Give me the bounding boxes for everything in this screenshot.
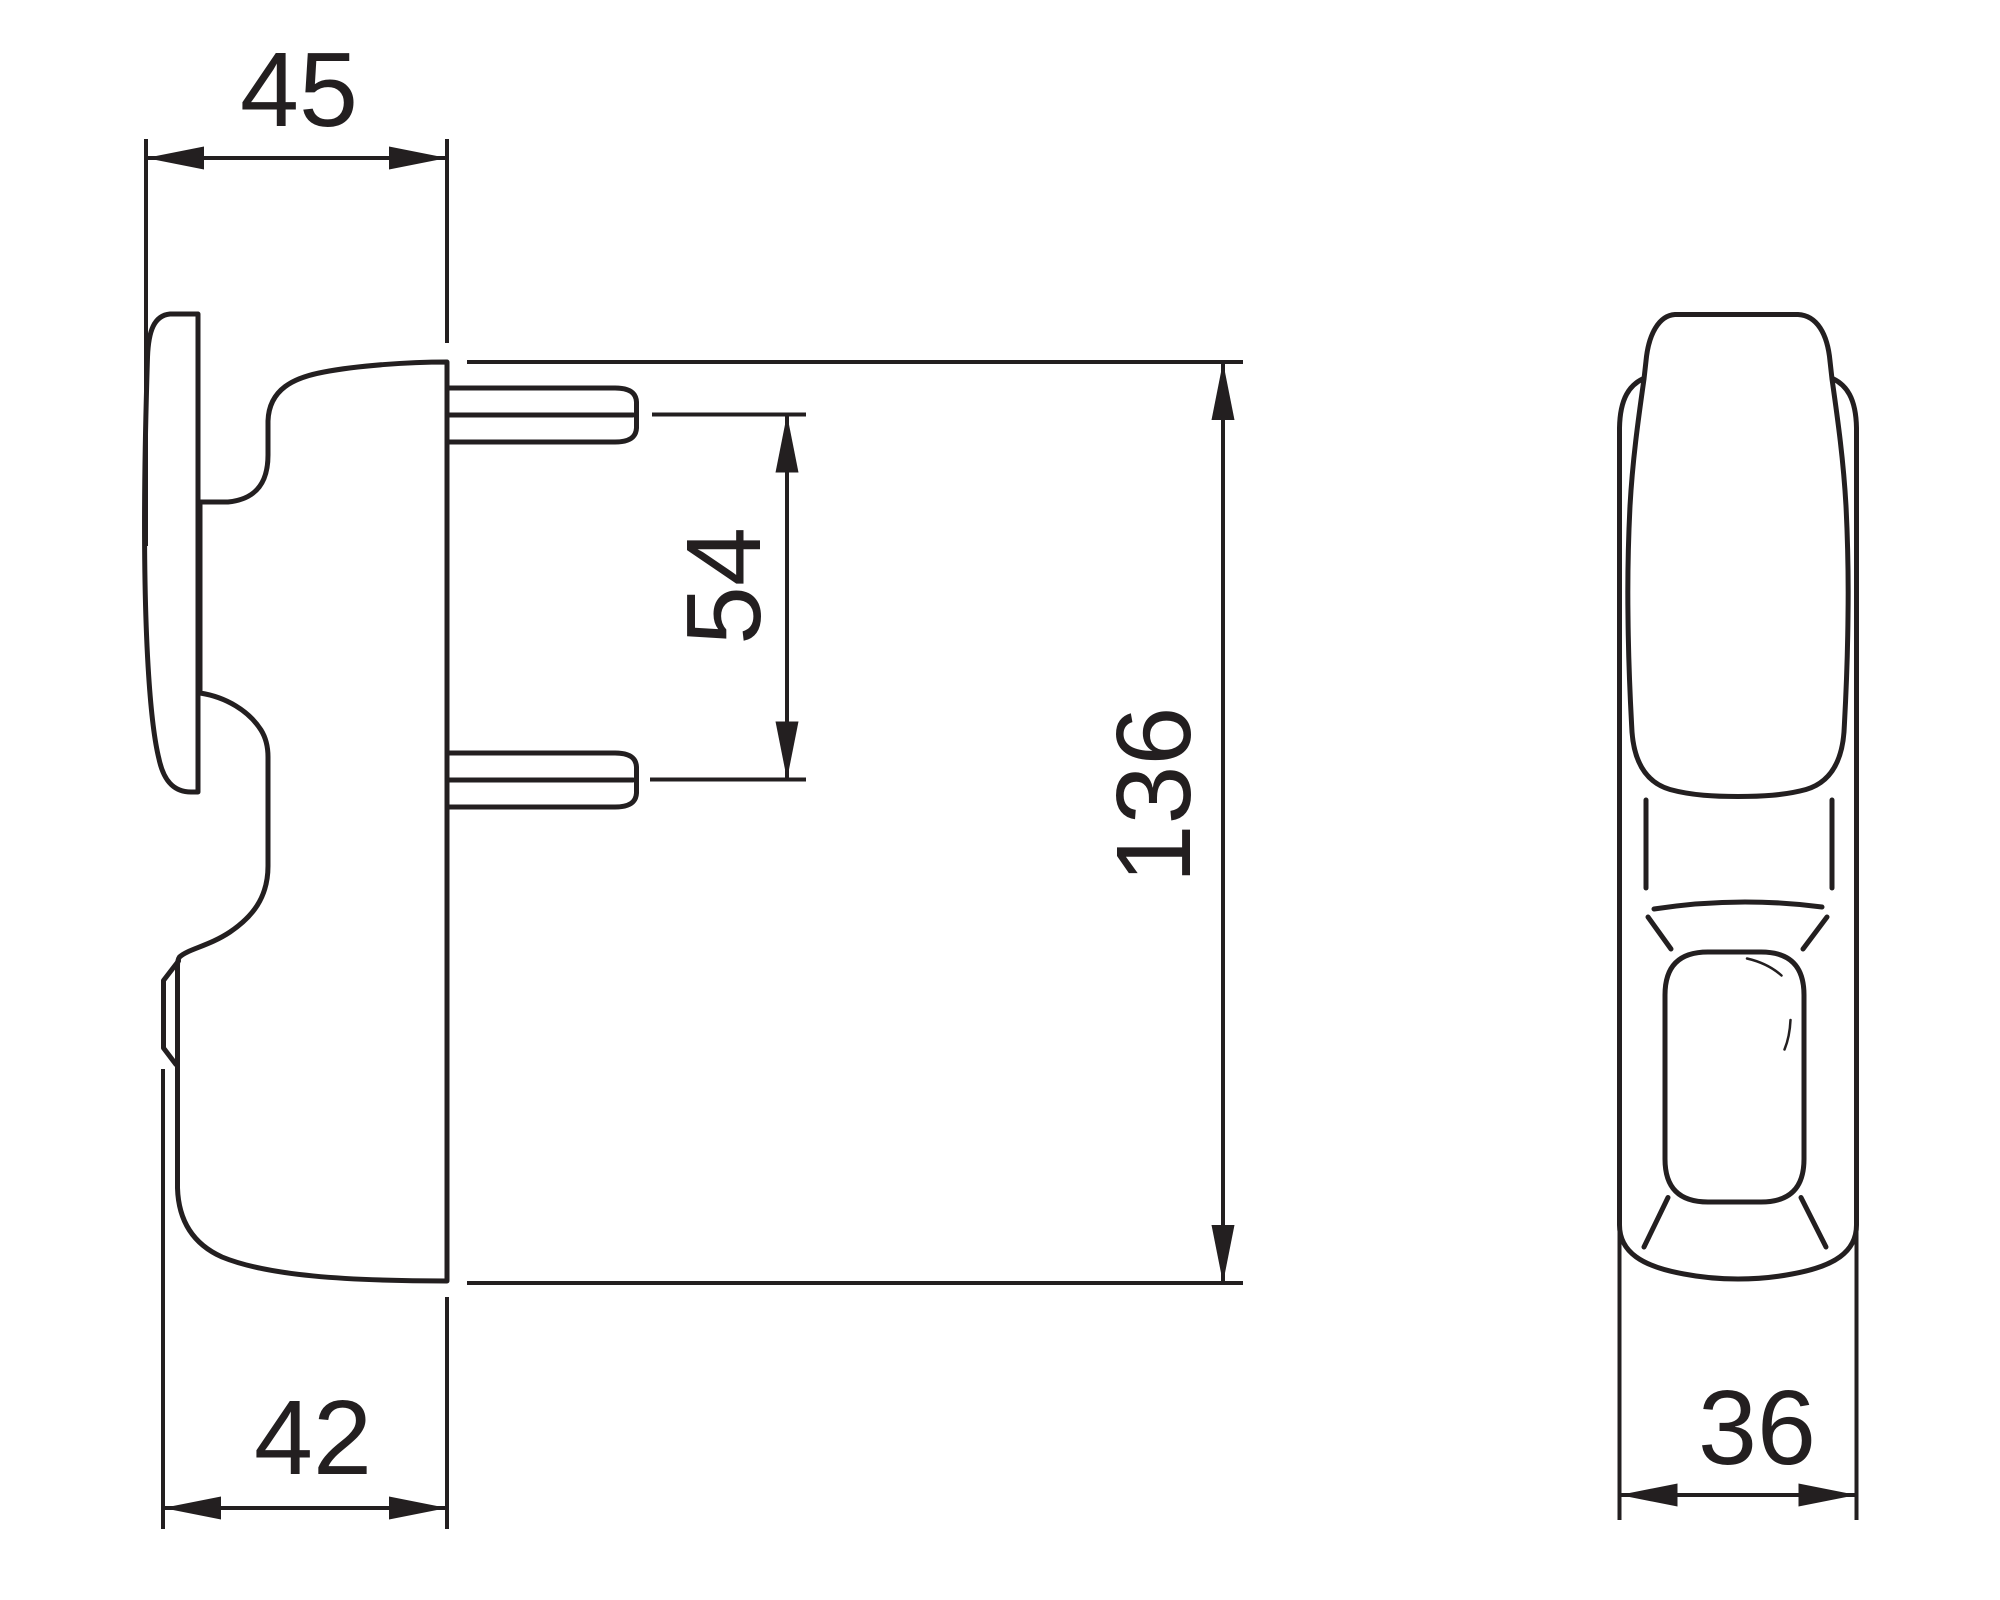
arrowhead-right	[389, 147, 447, 170]
dimension-label: 36	[1698, 1369, 1816, 1487]
arrowhead-bottom	[776, 722, 799, 780]
handle-body-outline	[178, 362, 448, 1281]
dimension-label: 54	[665, 527, 783, 645]
arrowhead-top	[776, 415, 799, 473]
arrowhead-bottom	[1212, 1225, 1235, 1283]
dimension-pin-spacing: 54	[650, 415, 806, 780]
grip-outline	[1628, 315, 1848, 797]
thumb-recess-oval	[1665, 952, 1804, 1202]
arrowhead-right	[389, 1497, 447, 1520]
plate-outline	[145, 314, 198, 792]
dimension-overall-height: 136	[467, 362, 1243, 1283]
drawing-canvas: 45 54 136 42 36	[0, 0, 2000, 1600]
front-view	[1620, 315, 1857, 1280]
dimension-label: 136	[1095, 707, 1213, 884]
arrowhead-left	[146, 147, 204, 170]
technical-drawing: 45 54 136 42 36	[0, 0, 2000, 1600]
arrowhead-left	[163, 1497, 221, 1520]
arrowhead-left	[1620, 1484, 1678, 1507]
arrowhead-top	[1212, 362, 1235, 420]
dimension-label: 42	[254, 1379, 372, 1497]
dimension-label: 45	[240, 31, 358, 149]
side-view	[145, 314, 637, 1281]
